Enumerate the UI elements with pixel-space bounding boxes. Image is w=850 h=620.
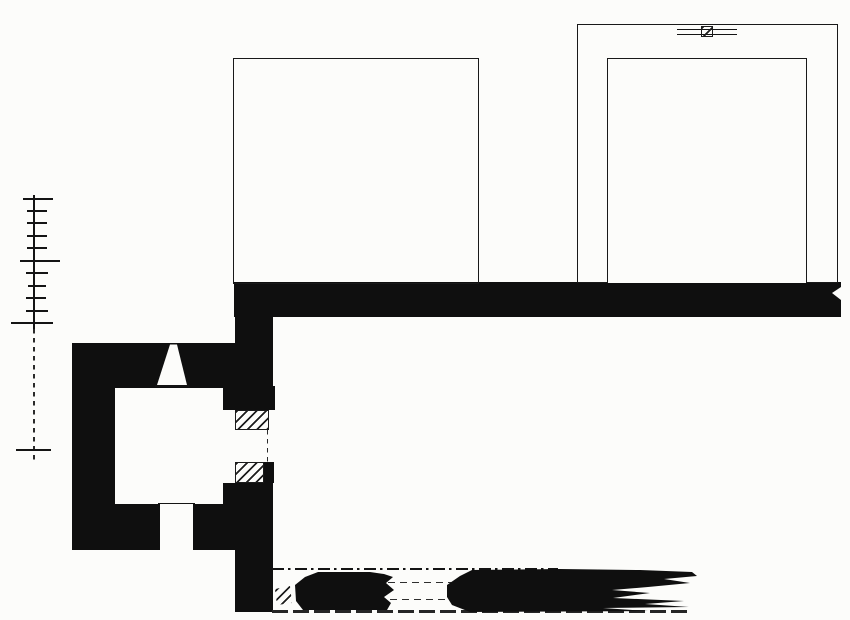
cross-wall-lower [223, 483, 273, 550]
ruin-axis-dashdot-line [272, 568, 558, 570]
scale-bar-tick [16, 449, 51, 451]
scale-bar-line-dashed [33, 329, 35, 463]
scale-bar-tick [26, 272, 48, 274]
main-wall-band [234, 282, 841, 317]
scale-bar-tick [20, 260, 60, 262]
east-door-swing-line [267, 430, 268, 462]
courtyard-outline [233, 58, 479, 284]
scale-bar-tick [26, 297, 46, 299]
scale-bar-tick [27, 247, 47, 249]
window-inner-face-line [155, 385, 189, 387]
scale-bar-tick [27, 222, 47, 224]
room-south-wall-east [193, 504, 227, 550]
ruin-gap-dash-lower [390, 599, 450, 600]
south-door-inner-line [158, 503, 195, 504]
scale-bar-line-solid [33, 195, 35, 329]
east-door-south-jamb [235, 462, 264, 483]
scale-bar-tick [27, 210, 47, 212]
tower-interior [607, 58, 807, 283]
scale-bar-tick [27, 235, 47, 237]
ruin-gap-dash-upper [388, 582, 452, 583]
east-door-north-jamb [235, 410, 269, 430]
cross-wall-door-north-chunk [223, 386, 275, 410]
cross-wall-south [235, 550, 273, 612]
floor-plan-canvas [0, 0, 850, 620]
scale-bar-tick [11, 322, 53, 324]
scale-bar-tick [26, 310, 48, 312]
scale-bar-tick [28, 285, 46, 287]
scale-bar-tick [23, 198, 53, 200]
tower-entrance-pivot-block [701, 26, 713, 37]
room-north-wall [72, 343, 235, 388]
cross-wall-door-south-sliver [263, 462, 274, 483]
room-south-wall-west [72, 504, 160, 550]
